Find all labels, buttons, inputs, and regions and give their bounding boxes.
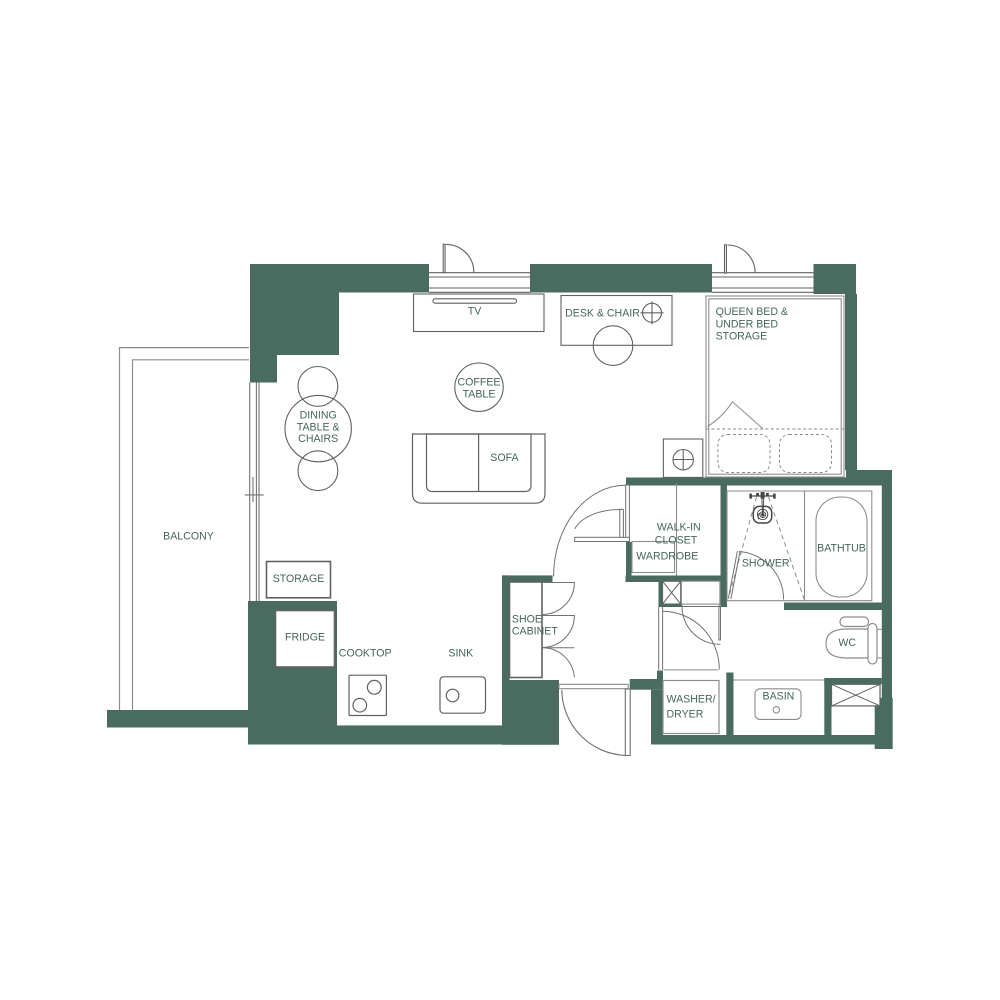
svg-text:CABINET: CABINET: [512, 626, 558, 638]
svg-text:SINK: SINK: [448, 647, 473, 659]
svg-text:STORAGE: STORAGE: [716, 330, 768, 342]
svg-text:TABLE: TABLE: [463, 388, 496, 400]
svg-text:DESK & CHAIR: DESK & CHAIR: [565, 307, 640, 319]
svg-text:QUEEN BED &: QUEEN BED &: [716, 306, 788, 318]
svg-text:WALK-IN: WALK-IN: [657, 522, 701, 534]
svg-text:SOFA: SOFA: [490, 452, 519, 464]
svg-text:WC: WC: [838, 637, 856, 649]
svg-text:BATHTUB: BATHTUB: [817, 543, 866, 555]
svg-text:CHAIRS: CHAIRS: [298, 433, 338, 445]
svg-text:STORAGE: STORAGE: [273, 573, 325, 585]
svg-text:DRYER: DRYER: [667, 708, 704, 720]
svg-text:SHOE: SHOE: [512, 613, 542, 625]
svg-text:CLOSET: CLOSET: [655, 534, 698, 546]
svg-text:WARDROBE: WARDROBE: [636, 550, 698, 562]
svg-text:UNDER BED: UNDER BED: [716, 318, 779, 330]
svg-text:BASIN: BASIN: [763, 690, 795, 702]
svg-text:FRIDGE: FRIDGE: [285, 632, 325, 644]
svg-text:BALCONY: BALCONY: [163, 531, 214, 543]
svg-text:TABLE &: TABLE &: [297, 421, 340, 433]
svg-text:SHOWER: SHOWER: [742, 558, 790, 570]
svg-text:COOKTOP: COOKTOP: [339, 647, 392, 659]
svg-text:COFFEE: COFFEE: [458, 377, 501, 389]
svg-text:WASHER/: WASHER/: [667, 694, 716, 706]
svg-text:TV: TV: [468, 306, 482, 318]
svg-text:DINING: DINING: [300, 409, 337, 421]
